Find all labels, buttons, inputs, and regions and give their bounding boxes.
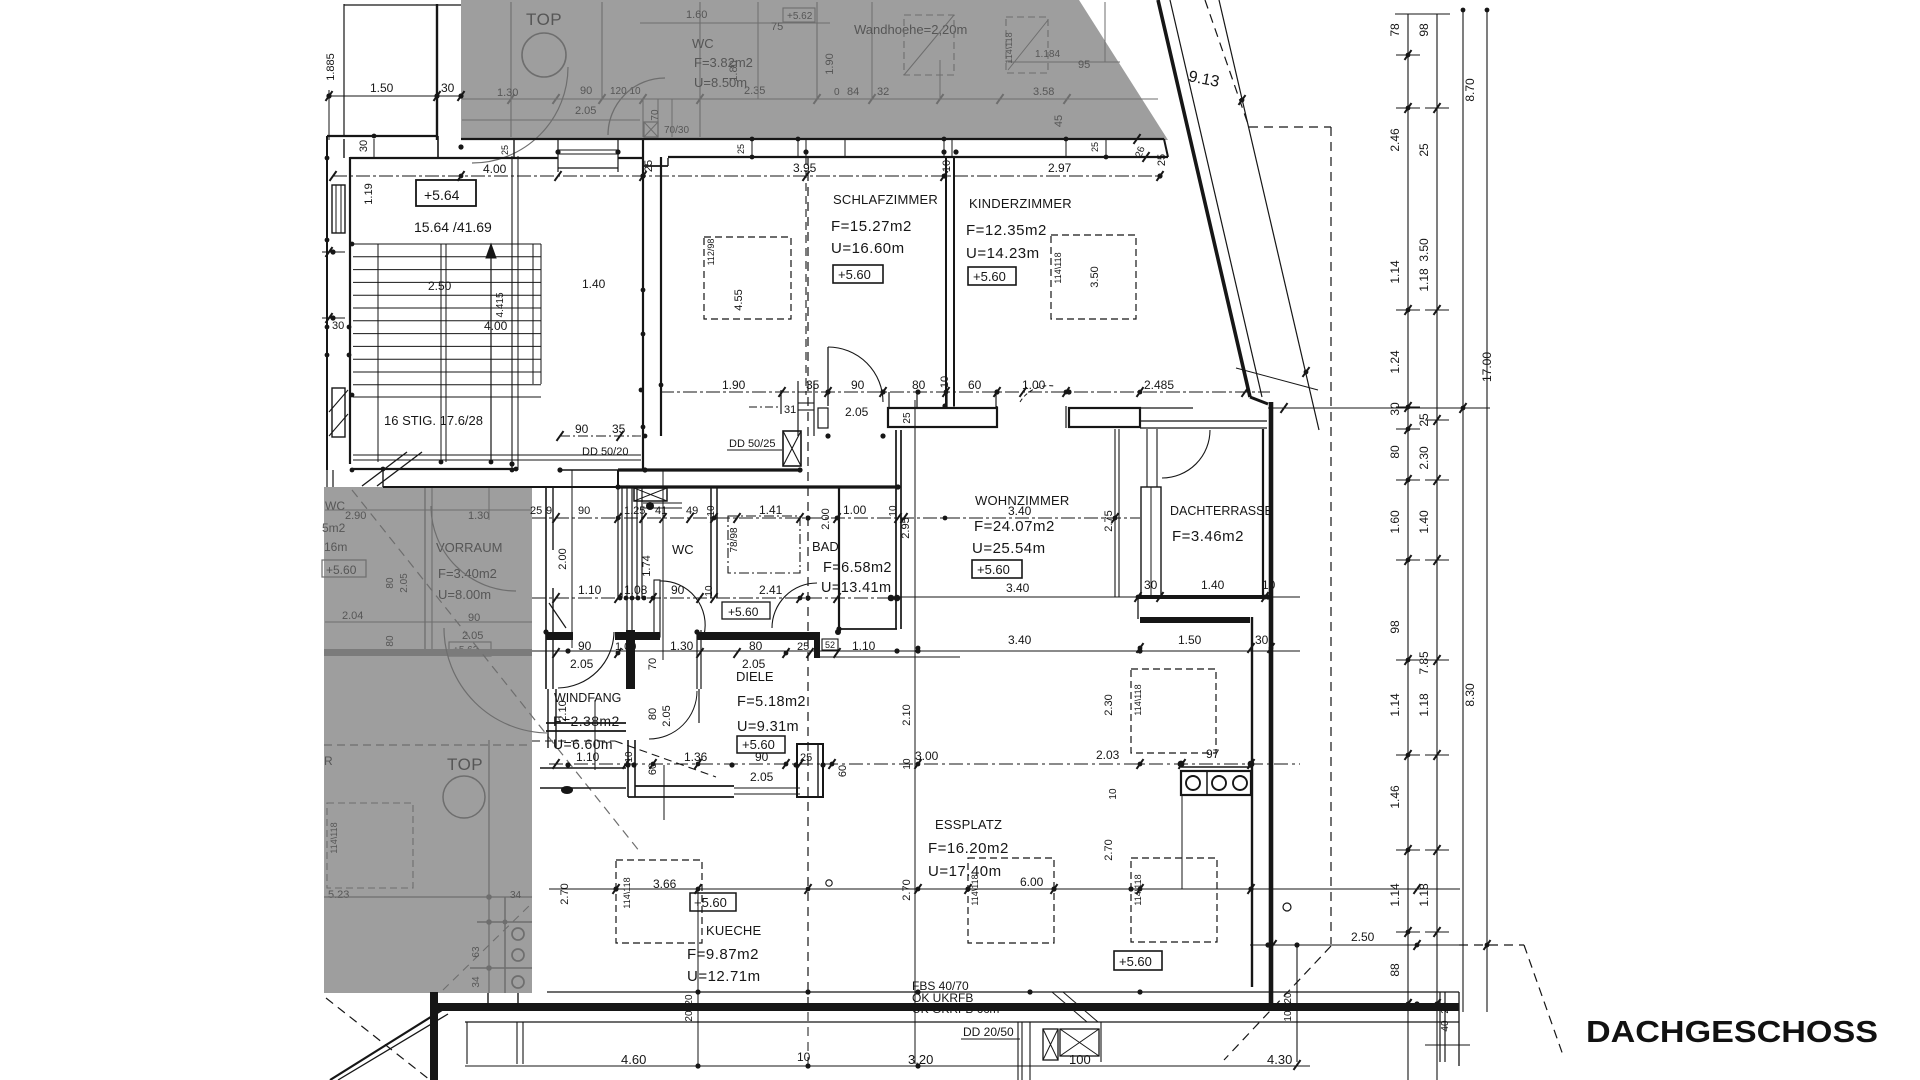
svg-text:KUECHE: KUECHE	[706, 923, 762, 938]
svg-text:2.05: 2.05	[845, 405, 869, 419]
svg-text:2.05: 2.05	[750, 770, 774, 784]
svg-text:2.35: 2.35	[744, 85, 765, 97]
svg-text:3.00: 3.00	[915, 749, 939, 763]
svg-text:2.30: 2.30	[1103, 694, 1115, 715]
svg-text:4.30: 4.30	[1267, 1052, 1292, 1067]
svg-text:1.08: 1.08	[624, 583, 648, 597]
svg-text:U=13.41m: U=13.41m	[821, 580, 892, 596]
svg-text:20: 20	[1283, 992, 1294, 1004]
svg-text:20: 20	[684, 1010, 695, 1022]
svg-text:70: 70	[650, 109, 661, 121]
svg-text:F=6.58m2: F=6.58m2	[823, 560, 892, 576]
svg-text:1.10: 1.10	[578, 583, 602, 597]
svg-text:TOP: TOP	[447, 755, 483, 774]
svg-text:78/98: 78/98	[729, 527, 740, 552]
svg-text:2.97: 2.97	[1048, 161, 1072, 175]
svg-text:70: 70	[647, 658, 659, 670]
svg-text:DACHTERRASSE: DACHTERRASSE	[1170, 504, 1273, 518]
svg-text:3.20: 3.20	[908, 1052, 933, 1067]
svg-text:DD 50/25: DD 50/25	[729, 438, 775, 450]
svg-text:25: 25	[1090, 142, 1100, 152]
svg-text:63: 63	[471, 946, 482, 958]
svg-text:3.50: 3.50	[1089, 266, 1101, 287]
svg-text:U=14.23m: U=14.23m	[966, 245, 1040, 262]
svg-text:10: 10	[1108, 788, 1119, 800]
svg-text:25: 25	[1417, 413, 1431, 427]
svg-text:2.41: 2.41	[759, 583, 783, 597]
svg-text:1.40: 1.40	[1201, 578, 1225, 592]
svg-text:1.14: 1.14	[1388, 260, 1402, 284]
svg-text:7.85: 7.85	[1417, 651, 1431, 675]
svg-text:90: 90	[851, 378, 865, 392]
svg-text:WC: WC	[692, 36, 714, 51]
svg-text:2.90: 2.90	[345, 510, 366, 522]
svg-text:1.90: 1.90	[722, 378, 746, 392]
svg-text:4.00: 4.00	[484, 319, 508, 333]
svg-text:80: 80	[1388, 445, 1402, 459]
svg-text:112/98: 112/98	[706, 239, 716, 266]
svg-text:1.80: 1.80	[728, 60, 740, 81]
svg-text:35: 35	[612, 422, 626, 436]
svg-text:F=3.46m2: F=3.46m2	[1172, 528, 1244, 545]
svg-text:90: 90	[671, 583, 685, 597]
svg-text:2.04: 2.04	[342, 610, 363, 622]
svg-text:16m: 16m	[324, 540, 347, 554]
svg-text:+5.60: +5.60	[973, 269, 1006, 284]
svg-text:1.10: 1.10	[576, 750, 600, 764]
svg-text:34: 34	[510, 890, 522, 901]
svg-text:5m2: 5m2	[322, 521, 346, 535]
svg-text:F=12.35m2: F=12.35m2	[966, 222, 1047, 239]
svg-text:+5.60: +5.60	[326, 563, 357, 577]
svg-text:+5.60: +5.60	[728, 605, 759, 619]
svg-text:5.23: 5.23	[328, 889, 349, 901]
svg-text:1.40: 1.40	[582, 277, 606, 291]
svg-text:2.10: 2.10	[557, 700, 569, 721]
svg-text:17.00: 17.00	[1480, 352, 1494, 382]
svg-text:8.30: 8.30	[1463, 683, 1477, 707]
svg-text:9: 9	[546, 505, 552, 517]
svg-text:+5.64: +5.64	[424, 187, 460, 203]
svg-text:1.18: 1.18	[1417, 693, 1431, 717]
svg-text:F=3.82m2: F=3.82m2	[694, 55, 753, 70]
svg-text:60: 60	[837, 765, 849, 777]
svg-text:F=3.40m2: F=3.40m2	[438, 566, 497, 581]
svg-text:2.00: 2.00	[820, 508, 832, 529]
svg-text:30: 30	[358, 140, 370, 152]
svg-text:+5.62: +5.62	[787, 11, 813, 22]
svg-text:4.00: 4.00	[483, 162, 507, 176]
svg-text:100: 100	[1069, 1052, 1091, 1067]
svg-text:DIELE: DIELE	[736, 669, 774, 684]
svg-text:15.64 /41.69: 15.64 /41.69	[414, 219, 492, 235]
svg-text:90: 90	[755, 750, 769, 764]
svg-text:1.25: 1.25	[624, 505, 645, 517]
svg-text:25: 25	[1417, 143, 1431, 157]
svg-text:1.50: 1.50	[1178, 633, 1202, 647]
svg-text:U=25.54m: U=25.54m	[972, 540, 1046, 557]
svg-text:VORRAUM: VORRAUM	[436, 540, 502, 555]
svg-text:88: 88	[1388, 963, 1402, 977]
svg-text:60: 60	[968, 378, 982, 392]
svg-text:90: 90	[468, 612, 480, 624]
svg-text:10: 10	[1283, 1010, 1294, 1022]
svg-text:114\118: 114\118	[1133, 874, 1143, 905]
svg-text:U=16.60m: U=16.60m	[831, 240, 905, 257]
svg-text:+5.60: +5.60	[838, 267, 871, 282]
svg-text:1.36: 1.36	[684, 750, 708, 764]
svg-text:97: 97	[1206, 747, 1220, 761]
svg-text:+5.60: +5.60	[694, 895, 727, 910]
svg-text:25: 25	[530, 505, 542, 517]
svg-text:45: 45	[1053, 115, 1065, 127]
svg-text:TOP: TOP	[526, 10, 562, 29]
svg-text:78: 78	[1388, 23, 1402, 37]
svg-text:2.05: 2.05	[742, 657, 766, 671]
svg-text:F=24.07m2: F=24.07m2	[974, 518, 1055, 535]
svg-text:2.70: 2.70	[901, 879, 913, 900]
svg-text:114\118: 114\118	[1004, 32, 1014, 63]
svg-text:1.885: 1.885	[325, 53, 337, 81]
svg-text:2.50: 2.50	[428, 279, 452, 293]
svg-text:25: 25	[736, 144, 746, 154]
svg-text:2.30: 2.30	[1417, 446, 1431, 470]
svg-text:90: 90	[578, 505, 590, 517]
svg-text:98: 98	[1417, 23, 1431, 37]
svg-text:1.90: 1.90	[824, 53, 836, 74]
svg-text:3.95: 3.95	[793, 161, 817, 175]
svg-text:90: 90	[575, 422, 589, 436]
svg-text:114\118: 114\118	[1053, 252, 1063, 283]
svg-text:10: 10	[939, 376, 951, 388]
svg-text:1.14: 1.14	[1388, 693, 1402, 717]
svg-text:1.40: 1.40	[1417, 510, 1431, 534]
svg-text:+5.60: +5.60	[1119, 954, 1152, 969]
svg-text:10: 10	[888, 505, 899, 517]
svg-text:25: 25	[902, 412, 913, 424]
svg-text:ESSPLATZ: ESSPLATZ	[935, 817, 1002, 832]
svg-text:30: 30	[1255, 633, 1269, 647]
svg-text:BAD: BAD	[812, 539, 839, 554]
svg-text:1.184: 1.184	[1035, 49, 1060, 60]
svg-text:1.18: 1.18	[1417, 268, 1431, 292]
svg-text:4.60: 4.60	[621, 1052, 646, 1067]
svg-text:75: 75	[771, 21, 783, 33]
svg-text:25: 25	[1156, 154, 1168, 166]
svg-text:10: 10	[902, 758, 913, 770]
svg-text:1.74: 1.74	[641, 555, 653, 576]
svg-text:70/30: 70/30	[664, 125, 689, 136]
svg-text:1.30: 1.30	[468, 510, 489, 522]
svg-text:+5.60: +5.60	[977, 562, 1010, 577]
svg-text:F=15.27m2: F=15.27m2	[831, 218, 912, 235]
svg-text:80: 80	[647, 708, 659, 720]
svg-text:52: 52	[825, 640, 835, 650]
svg-text:1.00: 1.00	[843, 503, 867, 517]
svg-text:2.70: 2.70	[559, 883, 571, 904]
svg-text:98: 98	[1388, 620, 1402, 634]
svg-text:10: 10	[704, 585, 715, 597]
svg-text:1.30: 1.30	[670, 639, 694, 653]
svg-text:4.415: 4.415	[495, 292, 506, 317]
svg-text:U=9.31m: U=9.31m	[737, 719, 799, 735]
svg-text:KINDERZIMMER: KINDERZIMMER	[969, 196, 1072, 211]
svg-text:DD 20/50: DD 20/50	[963, 1025, 1014, 1039]
svg-text:2.05: 2.05	[575, 105, 596, 117]
svg-text:30: 30	[1388, 402, 1402, 416]
svg-text:1.46: 1.46	[1388, 785, 1402, 809]
svg-text:2.05: 2.05	[661, 705, 673, 726]
svg-text:95: 95	[1078, 59, 1090, 71]
svg-text:40: 40	[1440, 1020, 1451, 1032]
svg-text:34: 34	[471, 976, 482, 988]
svg-text:25: 25	[500, 145, 510, 155]
svg-text:R: R	[324, 754, 333, 768]
svg-text:2.05: 2.05	[570, 657, 594, 671]
svg-text:3.50: 3.50	[1417, 238, 1431, 262]
svg-text:84: 84	[847, 86, 859, 98]
svg-text:120 10: 120 10	[610, 86, 641, 97]
svg-text:25: 25	[643, 160, 655, 172]
svg-text:SCHLAFZIMMER: SCHLAFZIMMER	[833, 192, 938, 207]
svg-text:WC: WC	[672, 542, 694, 557]
svg-text:90: 90	[578, 639, 592, 653]
svg-text:3.40: 3.40	[1006, 581, 1030, 595]
svg-text:30: 30	[1144, 578, 1158, 592]
svg-text:DACHGESCHOSS: DACHGESCHOSS	[1586, 1014, 1878, 1049]
svg-text:U=17.40m: U=17.40m	[928, 863, 1002, 880]
svg-text:UK GKRFB 6cm: UK GKRFB 6cm	[912, 1002, 999, 1016]
svg-text:1.24: 1.24	[1388, 350, 1402, 374]
svg-text:1.14: 1.14	[1388, 883, 1402, 907]
svg-text:32: 32	[877, 86, 889, 98]
svg-text:2.50: 2.50	[1351, 930, 1375, 944]
svg-text:114\118: 114\118	[970, 874, 980, 905]
svg-text:80: 80	[385, 635, 396, 647]
svg-text:WC: WC	[325, 499, 345, 513]
svg-text:DD 50/20: DD 50/20	[582, 446, 628, 458]
svg-text:4.55: 4.55	[733, 289, 745, 310]
svg-text:114\118: 114\118	[329, 822, 339, 853]
svg-text:31: 31	[784, 404, 796, 416]
svg-text:2.00: 2.00	[557, 548, 569, 569]
svg-text:16 STIG. 17.6/28: 16 STIG. 17.6/28	[384, 413, 483, 428]
svg-text:1.30: 1.30	[497, 87, 518, 99]
svg-text:80: 80	[749, 639, 763, 653]
svg-text:2.70: 2.70	[1103, 839, 1115, 860]
svg-text:10: 10	[624, 751, 635, 763]
svg-text:1.60: 1.60	[1388, 510, 1402, 534]
svg-text:2.46: 2.46	[1388, 128, 1402, 152]
svg-text:114\118: 114\118	[1133, 684, 1143, 715]
svg-text:2.05: 2.05	[399, 573, 410, 593]
svg-text:20: 20	[684, 994, 695, 1006]
svg-text:F=16.20m2: F=16.20m2	[928, 840, 1009, 857]
svg-text:90: 90	[580, 85, 592, 97]
svg-text:1.50: 1.50	[370, 81, 394, 95]
svg-text:10: 10	[797, 1050, 811, 1064]
svg-text:2.485: 2.485	[1144, 378, 1174, 392]
svg-text:1.41: 1.41	[759, 503, 783, 517]
svg-text:30: 30	[441, 81, 455, 95]
svg-text:80: 80	[385, 577, 396, 589]
svg-text:Wandhoehe=2,20m: Wandhoehe=2,20m	[854, 22, 967, 37]
svg-text:3.58: 3.58	[1033, 86, 1054, 98]
svg-text:0: 0	[834, 87, 840, 98]
svg-text:20: 20	[1440, 1002, 1451, 1014]
svg-text:6.00: 6.00	[1020, 875, 1044, 889]
svg-text:3.40: 3.40	[1008, 633, 1032, 647]
svg-text:2.03: 2.03	[1096, 748, 1120, 762]
svg-text:1.18: 1.18	[1417, 883, 1431, 907]
svg-text:114\118: 114\118	[622, 877, 632, 908]
svg-text:2.10: 2.10	[901, 704, 913, 725]
svg-text:1.10: 1.10	[852, 639, 876, 653]
svg-text:30: 30	[332, 320, 344, 332]
svg-text:3.40: 3.40	[1008, 504, 1032, 518]
svg-text:1.60: 1.60	[686, 9, 707, 21]
svg-text:1.19: 1.19	[363, 183, 375, 204]
svg-text:8.70: 8.70	[1463, 78, 1477, 102]
svg-text:U=8.00m: U=8.00m	[438, 587, 491, 602]
svg-text:F=5.18m2: F=5.18m2	[737, 694, 806, 710]
